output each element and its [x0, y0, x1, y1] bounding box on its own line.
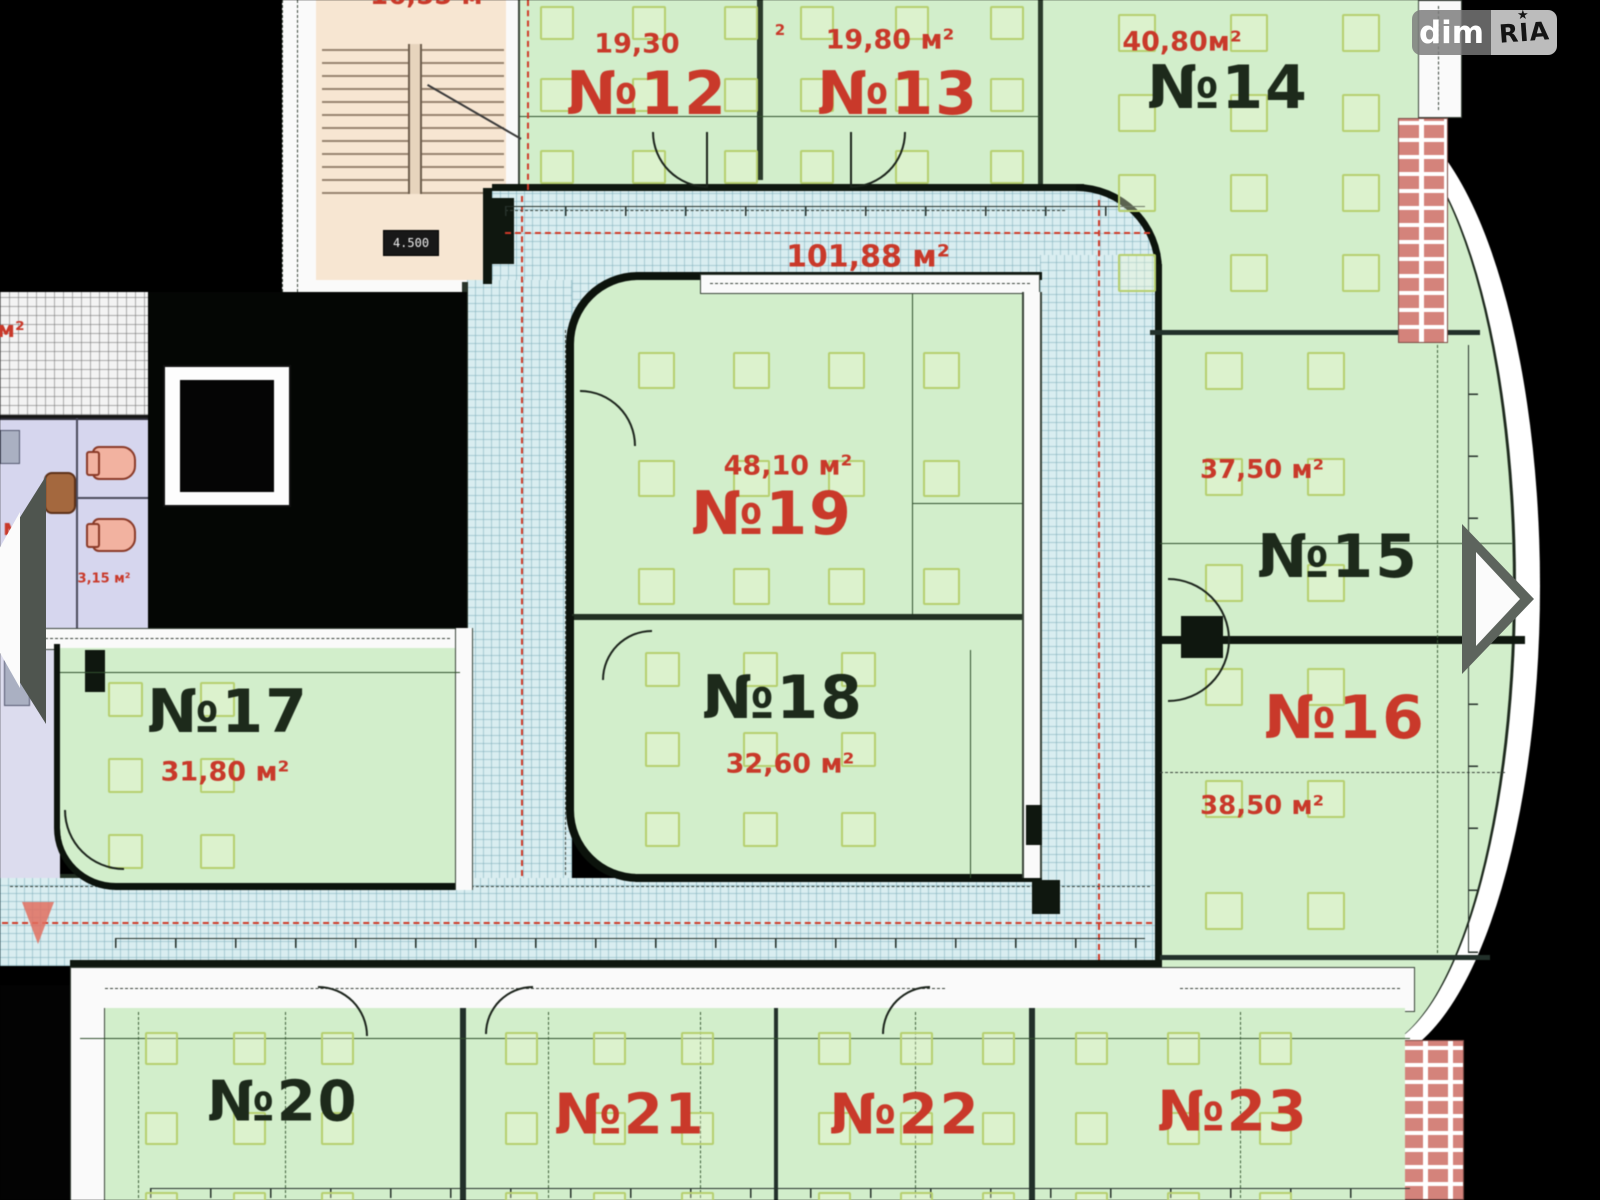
bottom-rooms-top-wall [70, 967, 1415, 1012]
furniture-square [108, 682, 143, 717]
furniture-square [724, 6, 758, 40]
bottom-rooms-dim-line [80, 1038, 1410, 1039]
wc-small-area-label: 3,15 м² [78, 572, 131, 587]
furniture-square [145, 1112, 178, 1145]
furniture-square [828, 568, 865, 605]
room-16-dim-dash [1160, 772, 1505, 773]
room-17-corner-column [85, 650, 105, 692]
furniture-square [982, 1032, 1015, 1065]
room-19-partition-dash [710, 283, 1030, 284]
furniture-square [800, 150, 834, 184]
dimension-row-bottom [115, 938, 1145, 948]
furniture-square [681, 1192, 714, 1200]
furniture-square [1342, 94, 1380, 132]
furniture-square [1167, 1192, 1200, 1200]
wc-partition-v [76, 418, 78, 630]
room-20-number: №20 [207, 1070, 358, 1135]
elevator-cab [180, 380, 274, 492]
wc-partition-h1 [76, 497, 148, 499]
brick-wall-bottom-right [1402, 1040, 1464, 1200]
room-22-number: №22 [829, 1083, 980, 1148]
furniture-square [900, 1192, 933, 1200]
room-17-window-dash [45, 638, 450, 639]
furniture-square [1259, 1032, 1292, 1065]
room-12-area: 19,30 [594, 29, 679, 60]
furniture-square [145, 1032, 178, 1065]
furniture-square [1205, 352, 1243, 390]
floorplan-drawing: 4.500 16,55 м² [0, 0, 1600, 1200]
wall-rooms-corridor-right [1022, 292, 1042, 878]
room-17-area: 31,80 м² [161, 757, 290, 788]
furniture-square [990, 150, 1024, 184]
furniture-square [681, 1032, 714, 1065]
furniture-square [1230, 174, 1268, 212]
grid-dash-right-wing [1437, 335, 1438, 953]
furniture-square [638, 568, 675, 605]
furniture-square [540, 150, 574, 184]
brick-wall-top-right [1398, 118, 1448, 343]
furniture-square [505, 1192, 538, 1200]
room-18-area: 32,60 м² [726, 749, 855, 780]
furniture-square [900, 1032, 933, 1065]
furniture-square [1075, 1032, 1108, 1065]
room-13-number: №13 [817, 59, 979, 129]
toilet-icon-2 [92, 518, 136, 552]
furniture-square [1118, 254, 1156, 292]
tiny-dimension-digit: 2 [775, 21, 785, 39]
furniture-square [818, 1192, 851, 1200]
watermark-logo: dim RIA ★ [1412, 10, 1557, 55]
room-17-right-wall [455, 628, 473, 890]
room-23-number: №23 [1157, 1080, 1308, 1145]
wall-21-22 [774, 1008, 778, 1200]
furniture-square [923, 460, 960, 497]
furniture-square [724, 150, 758, 184]
room-19-area: 48,10 м² [724, 451, 853, 482]
room-13-area: 19,80 м² [826, 25, 955, 56]
furniture-square [638, 460, 675, 497]
wc-fixture-1 [0, 430, 20, 464]
level-mark-text: 4.500 [393, 236, 429, 250]
floorplan-photo-viewer: 4.500 16,55 м² [0, 0, 1600, 1200]
room-16-area: 38,50 м² [1200, 791, 1324, 821]
watermark-dim: dim [1412, 10, 1491, 55]
furniture-square [638, 352, 675, 389]
furniture-square [233, 1192, 266, 1200]
corridor-right-outer-wall [1155, 264, 1162, 964]
furniture-square [505, 1032, 538, 1065]
room-15-number: №15 [1257, 522, 1419, 592]
furniture-square [990, 78, 1024, 112]
corridor-top-outer-wall [492, 184, 1084, 191]
furniture-square [982, 1192, 1015, 1200]
stair-flight-left [322, 44, 408, 194]
furniture-square [645, 812, 680, 847]
corridor-bottom-outer-wall [70, 960, 1162, 967]
wall-16-23 [1160, 955, 1490, 960]
furniture-square [1118, 174, 1156, 212]
wall-block-18 [1026, 805, 1042, 845]
stair-flight-right [418, 44, 504, 194]
black-corner-bottom-left [0, 985, 70, 1200]
furniture-square [1342, 14, 1380, 52]
furniture-square [233, 1032, 266, 1065]
furniture-square [1167, 1032, 1200, 1065]
furniture-square [733, 352, 770, 389]
room-16-number: №16 [1264, 683, 1426, 753]
furniture-square [1230, 254, 1268, 292]
room-19-number: №19 [691, 479, 853, 549]
furniture-square [1205, 892, 1243, 930]
bottom-window-dash-2 [1180, 988, 1400, 989]
wall-22-23 [1029, 1008, 1035, 1200]
terrace-hatch [0, 292, 148, 418]
furniture-square [1342, 174, 1380, 212]
furniture-square [505, 1112, 538, 1145]
room-17-number: №17 [147, 677, 309, 747]
furniture-square [818, 1032, 851, 1065]
corridor-left-band [467, 280, 572, 880]
furniture-square [645, 732, 680, 767]
toilet-icon-1 [92, 446, 136, 480]
furniture-square [1307, 892, 1345, 930]
furniture-square [841, 812, 876, 847]
stairwell-area-label: 16,55 м² [370, 0, 494, 11]
furniture-square [321, 1032, 354, 1065]
room-19-top-partition [700, 274, 1040, 294]
wall-20-21 [460, 1008, 466, 1200]
stair-divider [408, 44, 422, 194]
furniture-square [1075, 1192, 1108, 1200]
furniture-square [200, 834, 235, 869]
furniture-square [145, 1192, 178, 1200]
bottom-left-wall [70, 1008, 105, 1200]
furniture-square [1307, 352, 1345, 390]
room-21-number: №21 [554, 1083, 705, 1148]
wall-block-corridor-junction [1032, 880, 1060, 914]
furniture-square [743, 812, 778, 847]
furniture-square [982, 1112, 1015, 1145]
room-12-number: №12 [566, 59, 728, 129]
furniture-square [990, 6, 1024, 40]
grid-dash-b1 [138, 1012, 139, 1198]
exit-arrow-icon [22, 902, 54, 944]
wall-column-left-of-stairs [282, 0, 298, 292]
room-15-area: 37,50 м² [1200, 455, 1324, 485]
escape-line-left [521, 196, 523, 876]
escape-line-bottom [2, 922, 1152, 924]
grid-dash-b3 [548, 1012, 549, 1198]
level-mark-box: 4.500 [383, 230, 439, 256]
furniture-square [828, 352, 865, 389]
room-19-inner-line [912, 294, 913, 620]
terrace-area-label-cut: 0 м² [0, 318, 25, 343]
corridor-area-label: 101,88 м² [786, 240, 950, 275]
room-14-number: №14 [1147, 53, 1309, 123]
sink-icon [44, 472, 76, 514]
room-19-closet-line [912, 503, 1036, 504]
furniture-square [923, 568, 960, 605]
furniture-square [733, 568, 770, 605]
furniture-square [923, 352, 960, 389]
furniture-square [1075, 1112, 1108, 1145]
furniture-square [108, 758, 143, 793]
escape-line-right [1098, 200, 1100, 960]
dimension-row-top [505, 206, 1145, 216]
room-18-inner-line [970, 650, 971, 878]
escape-line-top [505, 232, 1150, 234]
furniture-square [1342, 254, 1380, 292]
watermark-ria: RIA ★ [1491, 10, 1557, 55]
escape-line-stair-side [527, 0, 529, 190]
furniture-square [724, 78, 758, 112]
star-icon: ★ [1517, 10, 1530, 23]
furniture-square [321, 1192, 354, 1200]
furniture-square [540, 6, 574, 40]
room-18-number: №18 [702, 663, 864, 733]
corridor-right-band [1040, 255, 1160, 967]
furniture-square [1259, 1192, 1292, 1200]
room-17-dim-line [60, 672, 460, 673]
furniture-square [593, 1032, 626, 1065]
furniture-square [593, 1192, 626, 1200]
